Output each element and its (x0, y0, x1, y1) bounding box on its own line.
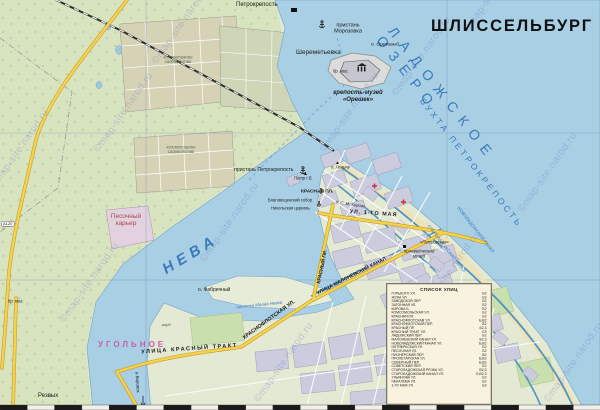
map-label-krasnaya-square: КРАСНАЯ ПЛ. (301, 189, 333, 194)
map-canvas: ЛАДОЖСКОЕ ОЗЕРОБУХТА ПЕТРОКРЕПОСТЬНЕВАШе… (0, 0, 600, 410)
map-label-sheremetyevka: Шереметьевка (296, 49, 341, 56)
map-label-brat-mogila: бр. мог. (333, 69, 348, 74)
map-label-nikolskaya-church: Никольская церковь (271, 206, 310, 211)
map-label-to-kirovsk: в Кировск (134, 372, 140, 393)
watermark: ©map-site.narod.ru (198, 180, 261, 264)
map-label-club: клуб (162, 323, 170, 327)
legend-street-name: 1-ГО МАЯ УЛ. (392, 384, 414, 388)
watermark: ©map-site.narod.ru (252, 320, 315, 404)
map-label-ugolnoe: УГОЛЬНОЕ (98, 341, 166, 350)
watermark: ©map-site.narod.ru (516, 130, 579, 214)
map-label-petrokrepost-station: Петрокрепость (236, 2, 278, 9)
map-label-peter-monument: Петр I В. (294, 176, 313, 181)
watermark: ©map-site.narod.ru (542, 320, 600, 404)
map-label-sadovodstvo-2: коллективное садоводство (150, 145, 212, 154)
watermark: ©map-site.narod.ru (92, 70, 155, 154)
legend-rows: ГОРЬКОГО УЛ.Б2ЖУКА УЛ.Б2ЗАВОДСКОЙ ПЕР.Б2… (389, 292, 489, 388)
map-label-krasny-prospekt: КРАСНЫЙ ПР. (316, 250, 328, 284)
map-label-malonevsky-street: УЛИЦА МАЛОНЕВСКИЙ КАНАЛ (316, 256, 387, 296)
road-number-badge: А120 (1, 221, 14, 227)
map-label-brat-mogila-2: бр. мог. (8, 299, 23, 304)
map-label-museum: Краеведческий музей (396, 249, 442, 259)
map-label-orehovy-island: о. Ореховый (371, 42, 399, 47)
map-label-lake-name: ЛАДОЖСКОЕ ОЗЕРО (373, 24, 522, 203)
street-index-legend: СПИСОК УЛИЦ ГОРЬКОГО УЛ.Б2ЖУКА УЛ.Б2ЗАВО… (386, 283, 492, 405)
map-label-protoka: протока Малая Невка (236, 300, 282, 310)
map-label-pier-morozovka: пристань Морозовка (326, 22, 370, 34)
watermark: ©map-site.narod.ru (0, 107, 51, 191)
map-title: ШЛИССЕЛЬБУРГ (431, 17, 593, 36)
legend-grid-ref: Б2 (482, 384, 486, 388)
legend-title: СПИСОК УЛИЦ (414, 287, 464, 290)
map-label-rezvykh: Резвых (38, 393, 58, 400)
map-label-fabrichny-island: о. Фабричный (198, 287, 230, 293)
map-label-petrovskaya: «Петровская» (420, 240, 449, 245)
map-label-sand-quarry: Песочный карьер (103, 213, 149, 227)
map-label-pier-petrokrepost: пристань Петрокрепость (234, 167, 293, 173)
map-label-cathedral: Благовещенский собор (268, 198, 312, 203)
watermark: ©map-site.narod.ru (58, 240, 121, 324)
map-label-lenin-monument: п. Ленину (331, 165, 350, 170)
watermark: ©map-site.narod.ru (318, 70, 381, 154)
map-label-kirova-blvd: б. С. М. Кирова (335, 200, 365, 209)
map-label-may-1-street: УЛ. 1-ГО МАЯ (350, 209, 398, 218)
labels-layer: ЛАДОЖСКОЕ ОЗЕРОБУХТА ПЕТРОКРЕПОСТЬНЕВАШе… (0, 0, 600, 410)
legend-row: 1-ГО МАЯ УЛ.Б2 (389, 384, 489, 388)
